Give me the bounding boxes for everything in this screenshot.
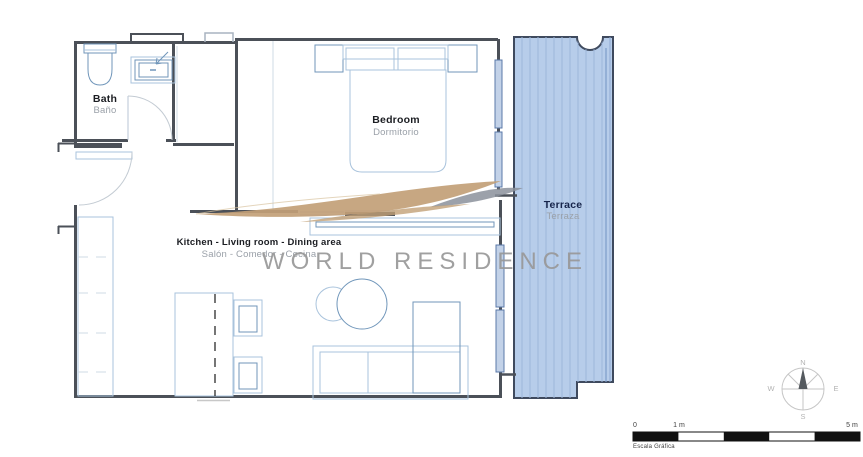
scale-five-label: 5 m bbox=[846, 422, 858, 429]
entry-door bbox=[74, 143, 132, 205]
bedroom-cabinet bbox=[310, 218, 500, 235]
dining-chair bbox=[234, 357, 262, 393]
compass-east-label: E bbox=[833, 384, 838, 393]
scale-caption: Escala Gráfica bbox=[633, 444, 675, 450]
terrace-sublabel: Terraza bbox=[546, 211, 579, 222]
scale-one-label: 1 m bbox=[673, 422, 685, 429]
dining-chair bbox=[234, 300, 262, 336]
sink bbox=[131, 52, 175, 83]
compass-south-label: S bbox=[800, 412, 805, 421]
living-room-label: Kitchen - Living room - Dining area bbox=[177, 237, 342, 248]
scale-bar bbox=[633, 432, 860, 441]
compass-north-label: N bbox=[800, 358, 805, 367]
compass-needle bbox=[799, 368, 808, 389]
bedroom-label: Bedroom bbox=[372, 114, 420, 126]
coffee-tables bbox=[316, 279, 387, 329]
toilet bbox=[84, 44, 116, 85]
bath-door bbox=[128, 96, 172, 140]
compass-west-label: W bbox=[767, 384, 774, 393]
scale-zero-label: 0 bbox=[633, 422, 637, 429]
bath-room-label: Bath bbox=[93, 93, 117, 105]
wall-notches bbox=[131, 33, 233, 42]
terrace-label: Terrace bbox=[544, 199, 583, 211]
kitchen-counter bbox=[78, 217, 113, 396]
brand-swoosh-logo bbox=[196, 181, 523, 222]
bedroom-sublabel: Dormitorio bbox=[373, 127, 419, 138]
dining-table bbox=[175, 293, 262, 401]
floorplan-drawing bbox=[0, 0, 863, 457]
bath-room-sublabel: Baño bbox=[94, 105, 117, 116]
watermark-text: WORLD RESIDENCE bbox=[262, 248, 588, 276]
floorplan-page: Bath Baño Bedroom Dormitorio Kitchen - L… bbox=[0, 0, 863, 457]
entry-steps bbox=[58, 143, 74, 234]
compass-rose bbox=[782, 368, 824, 410]
